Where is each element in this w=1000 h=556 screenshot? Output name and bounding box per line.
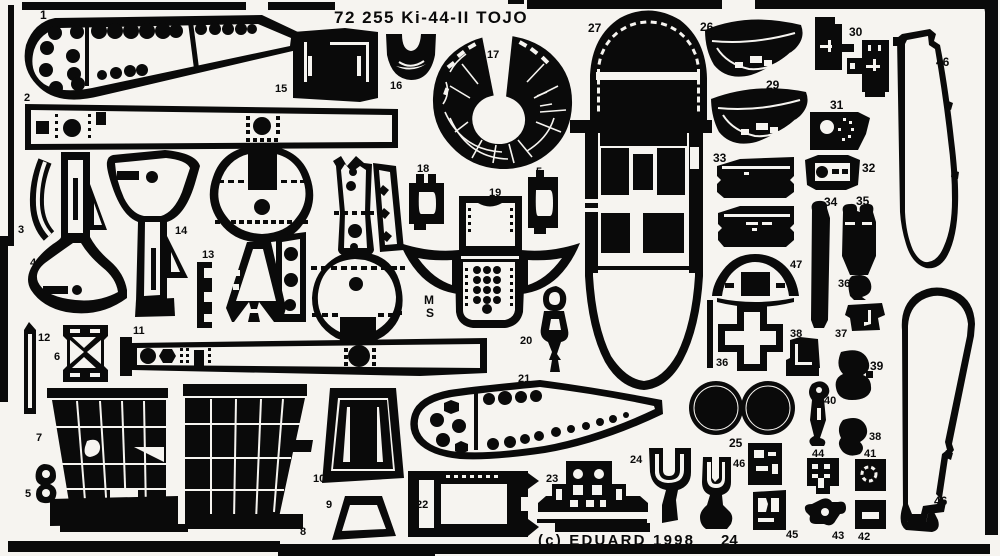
svg-text:17: 17 <box>487 49 499 61</box>
svg-text:72 255 Ki-44-II TOJO: 72 255 Ki-44-II TOJO <box>334 8 528 27</box>
svg-text:16: 16 <box>390 80 402 92</box>
svg-text:43: 43 <box>832 530 844 542</box>
svg-text:5: 5 <box>25 488 31 500</box>
svg-text:36: 36 <box>838 278 850 290</box>
svg-text:12: 12 <box>38 332 50 344</box>
svg-text:33: 33 <box>713 151 727 165</box>
svg-text:25: 25 <box>729 436 743 450</box>
svg-text:31: 31 <box>830 98 844 112</box>
svg-text:24: 24 <box>630 454 643 466</box>
svg-text:(c) EDUARD 1998: (c) EDUARD 1998 <box>538 532 695 549</box>
svg-text:3: 3 <box>18 224 24 236</box>
svg-text:27: 27 <box>588 21 602 35</box>
svg-text:30: 30 <box>849 25 863 39</box>
svg-text:42: 42 <box>858 531 870 543</box>
svg-text:22: 22 <box>416 499 428 511</box>
svg-text:37: 37 <box>835 328 847 340</box>
svg-text:41: 41 <box>864 448 876 460</box>
svg-text:39: 39 <box>870 359 884 373</box>
svg-text:47: 47 <box>790 259 802 271</box>
svg-text:1: 1 <box>40 8 47 22</box>
svg-text:46: 46 <box>733 458 745 470</box>
svg-text:45: 45 <box>786 529 798 541</box>
svg-text:11: 11 <box>133 325 145 337</box>
svg-text:24: 24 <box>721 532 738 549</box>
svg-text:32: 32 <box>862 161 876 175</box>
svg-text:7: 7 <box>36 432 42 444</box>
svg-text:2: 2 <box>24 92 30 104</box>
svg-text:6: 6 <box>54 351 60 363</box>
svg-text:S: S <box>426 306 434 320</box>
svg-text:15: 15 <box>275 83 287 95</box>
svg-text:36: 36 <box>716 357 728 369</box>
svg-text:14: 14 <box>175 225 188 237</box>
svg-text:9: 9 <box>326 499 332 511</box>
svg-text:13: 13 <box>202 249 214 261</box>
svg-text:18: 18 <box>417 163 429 175</box>
svg-text:20: 20 <box>520 335 532 347</box>
svg-text:38: 38 <box>869 431 881 443</box>
svg-text:M: M <box>424 293 434 307</box>
svg-text:23: 23 <box>546 473 558 485</box>
